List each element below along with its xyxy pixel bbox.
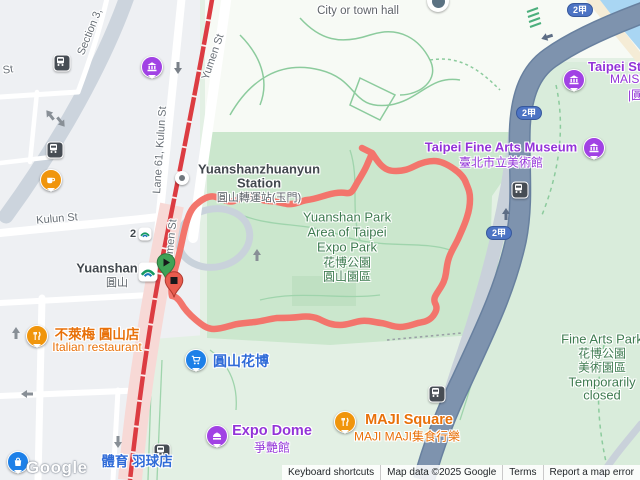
badminton-store-label[interactable]: 體育 羽球店 bbox=[101, 450, 172, 470]
fine-arts-park-zh2: 美術園區 bbox=[578, 359, 626, 376]
oneway-arrow bbox=[173, 62, 183, 74]
map-data-text: Map data ©2025 Google bbox=[381, 465, 502, 480]
report-error-link[interactable]: Report a map error bbox=[544, 465, 640, 480]
fine-arts-park-status2: closed bbox=[583, 388, 621, 403]
temple-pin[interactable] bbox=[141, 56, 163, 78]
bremen-sub-label: Italian restaurant bbox=[52, 340, 141, 354]
expo-dome-pin[interactable] bbox=[206, 425, 228, 447]
shopping-bag-icon bbox=[13, 457, 23, 467]
expo-park-label-1[interactable]: Yuanshan Park bbox=[303, 210, 391, 225]
coffee-icon bbox=[46, 175, 56, 185]
expo-dome-zh: 爭艷館 bbox=[254, 439, 290, 456]
maji-square-label[interactable]: MAJI Square bbox=[365, 412, 453, 428]
temple-icon bbox=[147, 62, 157, 72]
tfam-label[interactable]: Taipei Fine Arts Museum bbox=[425, 140, 577, 155]
metro-exit-icon[interactable] bbox=[139, 228, 152, 241]
highway-shield: 2甲 bbox=[567, 3, 593, 17]
fork-knife-icon bbox=[32, 331, 42, 341]
yuanshan-station-zh: 圓山 bbox=[106, 274, 128, 290]
bus-stop-icon[interactable] bbox=[512, 182, 529, 199]
taipei-st-label2: MAISO bbox=[610, 72, 640, 86]
cart-icon bbox=[191, 355, 201, 365]
oneway-arrow bbox=[21, 389, 33, 399]
restaurant-pin[interactable] bbox=[26, 325, 48, 347]
museum-pin[interactable] bbox=[583, 137, 605, 159]
city-hall-pin[interactable] bbox=[427, 0, 449, 16]
maji-square-zh: MAJI MAJI集食行樂 bbox=[354, 428, 460, 445]
street-label-st: St bbox=[2, 63, 14, 76]
oneway-arrow bbox=[113, 436, 123, 448]
expo-park-label-2[interactable]: Area of Taipei bbox=[307, 225, 386, 240]
highway-shield: 2甲 bbox=[486, 226, 512, 240]
highway-shield: 2甲 bbox=[516, 106, 542, 120]
city-hall-dot bbox=[432, 0, 445, 8]
expo-park-zh-2: 圓山園區 bbox=[323, 268, 371, 285]
oneway-arrow bbox=[501, 208, 511, 220]
taipei-st-label3: |圓 bbox=[628, 86, 640, 103]
bus-stop-icon[interactable] bbox=[429, 386, 446, 403]
maji-pin[interactable] bbox=[334, 411, 356, 433]
stop-icon bbox=[171, 277, 178, 284]
keyboard-shortcuts-link[interactable]: Keyboard shortcuts bbox=[282, 465, 380, 480]
station-circle-marker[interactable] bbox=[175, 171, 189, 185]
story-house-pin[interactable] bbox=[563, 69, 585, 91]
museum-icon bbox=[569, 75, 579, 85]
dome-icon bbox=[212, 431, 222, 441]
map-viewport[interactable]: 2甲 2甲 2甲 Section 3, St Kulun St Lane 61,… bbox=[0, 0, 640, 480]
fork-knife-icon bbox=[340, 417, 350, 427]
museum-icon bbox=[589, 143, 599, 153]
exit-2-label: 2 bbox=[130, 228, 136, 240]
google-logo[interactable]: Google bbox=[26, 458, 88, 478]
bus-stop-icon[interactable] bbox=[47, 142, 64, 159]
expo-dome-label[interactable]: Expo Dome bbox=[232, 423, 312, 439]
terms-link[interactable]: Terms bbox=[503, 465, 542, 480]
expo-park-label-3[interactable]: Expo Park bbox=[317, 240, 377, 255]
zhuanyun-station-zh: 圓山轉運站(玉門) bbox=[217, 189, 301, 205]
cafe-pin[interactable] bbox=[40, 169, 62, 191]
zhuanyun-station-label[interactable]: Yuanshanzhuanyun bbox=[198, 162, 320, 177]
tfam-zh: 臺北市立美術館 bbox=[459, 154, 543, 171]
taipei-metro-icon[interactable] bbox=[139, 263, 158, 282]
shopping-pin[interactable] bbox=[185, 349, 207, 371]
bus-stop-icon[interactable] bbox=[54, 55, 71, 72]
city-hall-label[interactable]: City or town hall bbox=[317, 5, 399, 17]
yuanshan-huabo-label[interactable]: 圓山花博 bbox=[213, 351, 269, 371]
station-dot bbox=[179, 175, 185, 181]
park-path-arrow bbox=[252, 249, 262, 261]
attribution-bar: Keyboard shortcuts Map data ©2025 Google… bbox=[282, 465, 640, 480]
oneway-arrow bbox=[11, 327, 21, 339]
route-end-marker[interactable] bbox=[164, 271, 184, 299]
